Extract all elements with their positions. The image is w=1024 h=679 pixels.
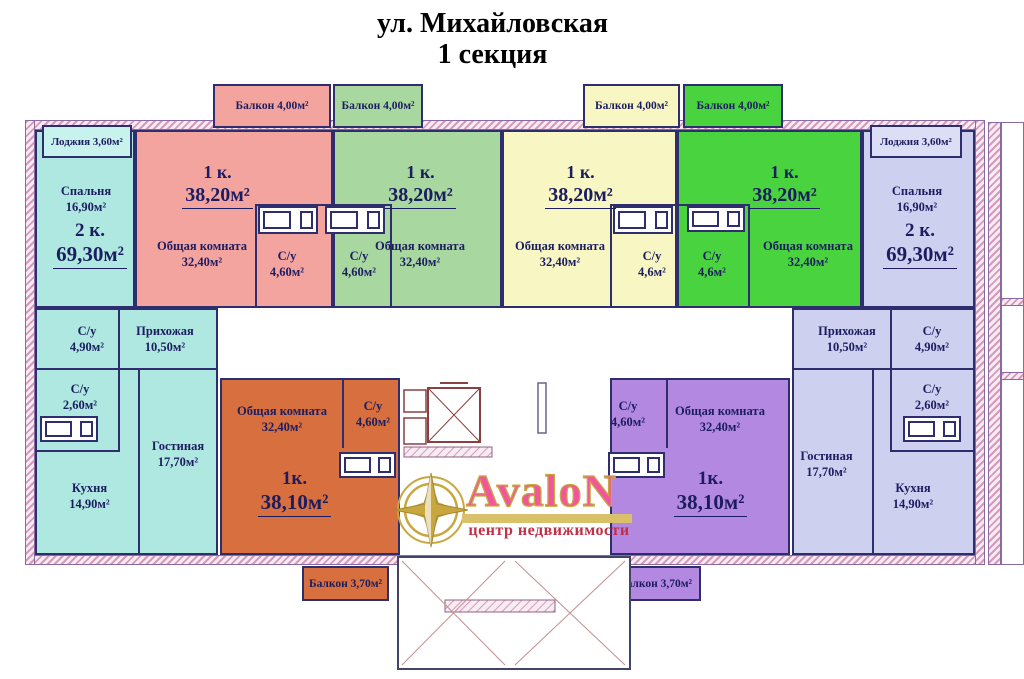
balcony-flat4: Балкон 4,00м² [683, 84, 783, 128]
loggia-left-label: Лоджия 3,60м² [44, 127, 130, 156]
street-title: ул. Михайловская [0, 8, 985, 39]
apartment-label-flat1: 1 к.38,20м² [155, 162, 280, 209]
bathtub-icon [258, 206, 318, 234]
loggia-right-label: Лоджия 3,60м² [872, 127, 960, 156]
floor-plan-page: ул. Михайловская 1 секция Балкон 4,00м² … [0, 0, 1024, 679]
room-label-hall: Прихожая10,50м² [797, 323, 897, 356]
bathtub-icon [325, 206, 385, 234]
room-label-common: Общая комната32,40м² [504, 238, 616, 271]
balcony-flat4-label: Балкон 4,00м² [696, 100, 769, 112]
apartment-label-flat5: 1к.38,10м² [232, 468, 357, 517]
room-label-common: Общая комната32,40м² [660, 403, 780, 436]
partition [118, 368, 120, 450]
room-label-wc1: С/у4,90м² [52, 323, 122, 356]
room-label-wc: С/у4,6м² [688, 248, 736, 281]
room-label-wc: С/у4,60м² [603, 398, 653, 431]
section-subtitle: 1 секция [0, 39, 985, 70]
apartment-label-flat3: 1 к.38,20м² [518, 162, 643, 209]
partition [342, 378, 344, 448]
wall-section2-nib2 [1001, 372, 1024, 380]
room-label-wc2: С/у2,60м² [902, 381, 962, 414]
apartment-label-right-2k: 2 к.69,30м² [870, 220, 970, 269]
logo-brand-text: AvaloN [466, 468, 617, 514]
bathtub-icon [903, 416, 961, 442]
wall-section2 [988, 122, 1001, 565]
room-label-wc: С/у4,6м² [628, 248, 676, 281]
room-label-wc1: С/у4,90м² [902, 323, 962, 356]
partition [748, 204, 750, 308]
balcony-flat1-label: Балкон 4,00м² [235, 100, 308, 112]
compass-rose-icon [393, 470, 469, 550]
partition [872, 368, 874, 555]
loggia-right: Лоджия 3,60м² [870, 125, 962, 158]
room-label-living: Гостиная17,70м² [784, 448, 869, 481]
partition [35, 368, 218, 370]
wall-right [975, 120, 985, 565]
room-label-wc: С/у4,60м² [348, 398, 398, 431]
balcony-flat2-label: Балкон 4,00м² [341, 100, 414, 112]
room-label-wc2: С/у2,60м² [45, 381, 115, 414]
room-label-bedroom: Спальня16,90м² [871, 183, 963, 216]
apartment-label-left-2k: 2 к.69,30м² [40, 220, 140, 269]
section2-partial [1001, 122, 1024, 565]
bathtub-icon [40, 416, 98, 442]
balcony-flat5: Балкон 3,70м² [302, 566, 389, 601]
balcony-flat1: Балкон 4,00м² [213, 84, 331, 128]
room-label-common: Общая комната32,40м² [223, 403, 341, 436]
page-title: ул. Михайловская 1 секция [0, 8, 985, 71]
partition [35, 450, 120, 452]
room-label-wc: С/у4,60м² [334, 248, 384, 281]
bathtub-icon [687, 206, 745, 232]
balcony-flat3: Балкон 4,00м² [583, 84, 680, 128]
wall-section2-nib1 [1001, 298, 1024, 306]
balcony-flat5-label: Балкон 3,70м² [309, 578, 382, 590]
partition [792, 368, 975, 370]
wall-left [25, 120, 35, 565]
room-label-living: Гостиная17,70м² [137, 438, 219, 471]
balcony-flat3-label: Балкон 4,00м² [595, 100, 668, 112]
room-label-hall: Прихожая10,50м² [115, 323, 215, 356]
room-label-wc: С/у4,60м² [262, 248, 312, 281]
room-label-kitchen: Кухня14,90м² [42, 480, 137, 513]
logo-tagline-text: центр недвижимости [468, 522, 630, 540]
apartment-label-flat2: 1 к.38,20м² [358, 162, 483, 209]
wall-top [25, 120, 985, 130]
apartment-label-flat6: 1к.38,10м² [648, 468, 773, 517]
partition [890, 368, 892, 450]
room-label-kitchen: Кухня14,90м² [867, 480, 959, 513]
partition [890, 450, 975, 452]
room-label-common: Общая комната32,40м² [752, 238, 864, 271]
balcony-flat2: Балкон 4,00м² [333, 84, 423, 128]
bathtub-icon [613, 206, 673, 234]
room-label-bedroom: Спальня16,90м² [40, 183, 132, 216]
room-label-common: Общая комната32,40м² [146, 238, 258, 271]
loggia-left: Лоджия 3,60м² [42, 125, 132, 158]
apartment-label-flat4: 1 к.38,20м² [722, 162, 847, 209]
